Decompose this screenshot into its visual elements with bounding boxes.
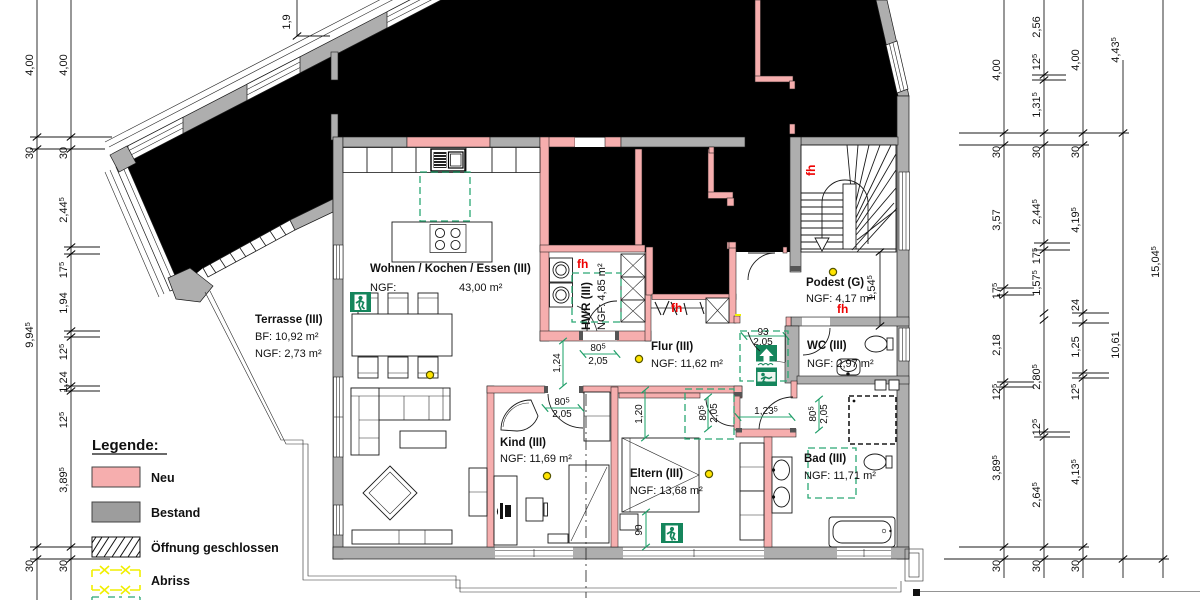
svg-text:Bad (III): Bad (III) (804, 453, 846, 465)
svg-text:NGF: 4,17 m²: NGF: 4,17 m² (806, 293, 873, 305)
svg-text:NGF: 4,85 m²: NGF: 4,85 m² (596, 263, 608, 330)
svg-text:2,56: 2,56 (1031, 16, 1043, 37)
svg-text:WC (III): WC (III) (807, 340, 847, 352)
svg-text:30: 30 (58, 147, 70, 159)
svg-text:30: 30 (1070, 560, 1082, 572)
svg-text:NGF: 11,71 m²: NGF: 11,71 m² (804, 470, 876, 482)
svg-text:Abriss: Abriss (151, 574, 190, 588)
svg-text:fh: fh (804, 165, 818, 176)
svg-text:NGF: 13,68 m²: NGF: 13,68 m² (630, 485, 703, 497)
svg-text:NGF: 2,97 m²: NGF: 2,97 m² (807, 358, 874, 370)
svg-text:24: 24 (1070, 299, 1082, 311)
svg-text:30: 30 (1031, 146, 1043, 158)
svg-text:NGF:: NGF: (370, 282, 396, 294)
svg-text:15,045: 15,045 (1149, 246, 1162, 278)
svg-text:4,00: 4,00 (24, 54, 36, 75)
svg-text:NGF: 2,73 m²: NGF: 2,73 m² (255, 348, 322, 360)
svg-text:30: 30 (24, 560, 36, 572)
svg-text:Wohnen / Kochen / Essen (III): Wohnen / Kochen / Essen (III) (370, 263, 531, 275)
svg-text:HWR (III): HWR (III) (581, 282, 593, 330)
svg-text:30: 30 (24, 147, 36, 159)
svg-text:1,9: 1,9 (281, 14, 293, 29)
svg-text:Kind (III): Kind (III) (500, 437, 546, 449)
svg-text:3,57: 3,57 (991, 209, 1003, 230)
svg-text:4,00: 4,00 (991, 59, 1003, 80)
svg-text:2,05: 2,05 (709, 403, 720, 423)
svg-text:BF: 10,92 m²: BF: 10,92 m² (255, 331, 319, 343)
svg-text:fh: fh (671, 301, 682, 315)
svg-text:90: 90 (634, 524, 645, 536)
svg-text:Legende:: Legende: (92, 437, 159, 454)
svg-text:1,25: 1,25 (1070, 336, 1082, 357)
svg-text:30: 30 (1070, 146, 1082, 158)
svg-text:1,24: 1,24 (552, 353, 563, 373)
svg-text:2,05: 2,05 (552, 409, 572, 420)
svg-text:2,05: 2,05 (819, 404, 830, 424)
svg-text:Öffnung geschlossen: Öffnung geschlossen (151, 540, 279, 555)
svg-text:30: 30 (991, 560, 1003, 572)
svg-text:30: 30 (1031, 560, 1043, 572)
svg-text:Terrasse (III): Terrasse (III) (255, 314, 323, 326)
svg-text:43,00 m²: 43,00 m² (459, 282, 503, 294)
svg-text:NGF: 11,69 m²: NGF: 11,69 m² (500, 453, 572, 465)
svg-text:fh: fh (577, 257, 588, 271)
svg-text:NGF: 11,62 m²: NGF: 11,62 m² (651, 358, 723, 370)
svg-text:1,94: 1,94 (58, 292, 70, 313)
svg-text:2,18: 2,18 (991, 334, 1003, 355)
svg-text:Neu: Neu (151, 471, 175, 485)
svg-text:30: 30 (58, 560, 70, 572)
svg-text:30: 30 (991, 146, 1003, 158)
svg-text:4,00: 4,00 (1070, 49, 1082, 70)
svg-text:Podest (G): Podest (G) (806, 277, 864, 289)
svg-text:1,20: 1,20 (634, 404, 645, 424)
svg-text:Flur (III): Flur (III) (651, 341, 693, 353)
svg-text:4,00: 4,00 (58, 54, 70, 75)
svg-text:Bestand: Bestand (151, 506, 200, 520)
svg-text:1,24: 1,24 (58, 371, 70, 392)
svg-text:Eltern (III): Eltern (III) (630, 468, 683, 480)
svg-text:10,61: 10,61 (1110, 331, 1122, 359)
svg-text:2,05: 2,05 (588, 356, 608, 367)
